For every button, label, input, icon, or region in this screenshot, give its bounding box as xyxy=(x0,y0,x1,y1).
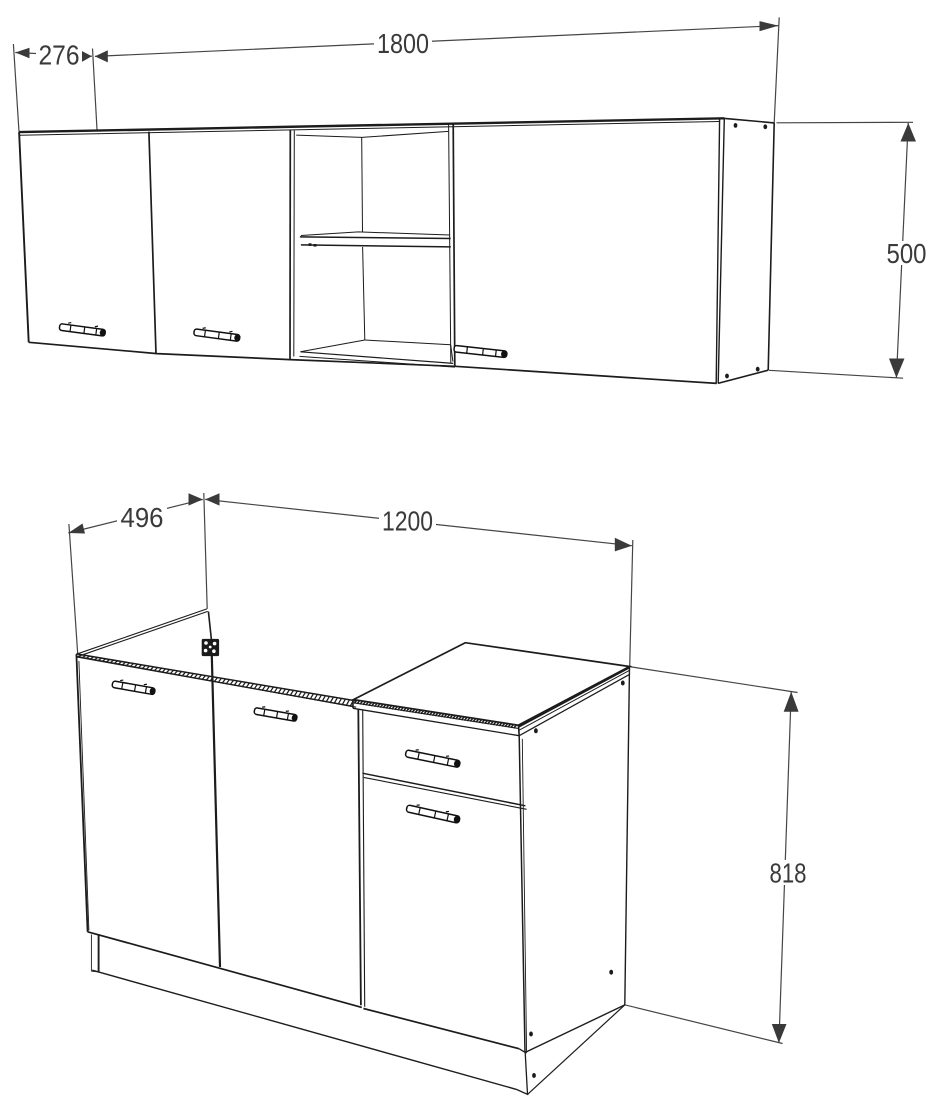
svg-text:1200: 1200 xyxy=(382,506,433,537)
svg-text:818: 818 xyxy=(770,858,807,889)
svg-text:496: 496 xyxy=(121,502,164,533)
svg-text:500: 500 xyxy=(887,238,927,269)
svg-text:1800: 1800 xyxy=(377,28,429,59)
svg-text:276: 276 xyxy=(39,40,80,71)
